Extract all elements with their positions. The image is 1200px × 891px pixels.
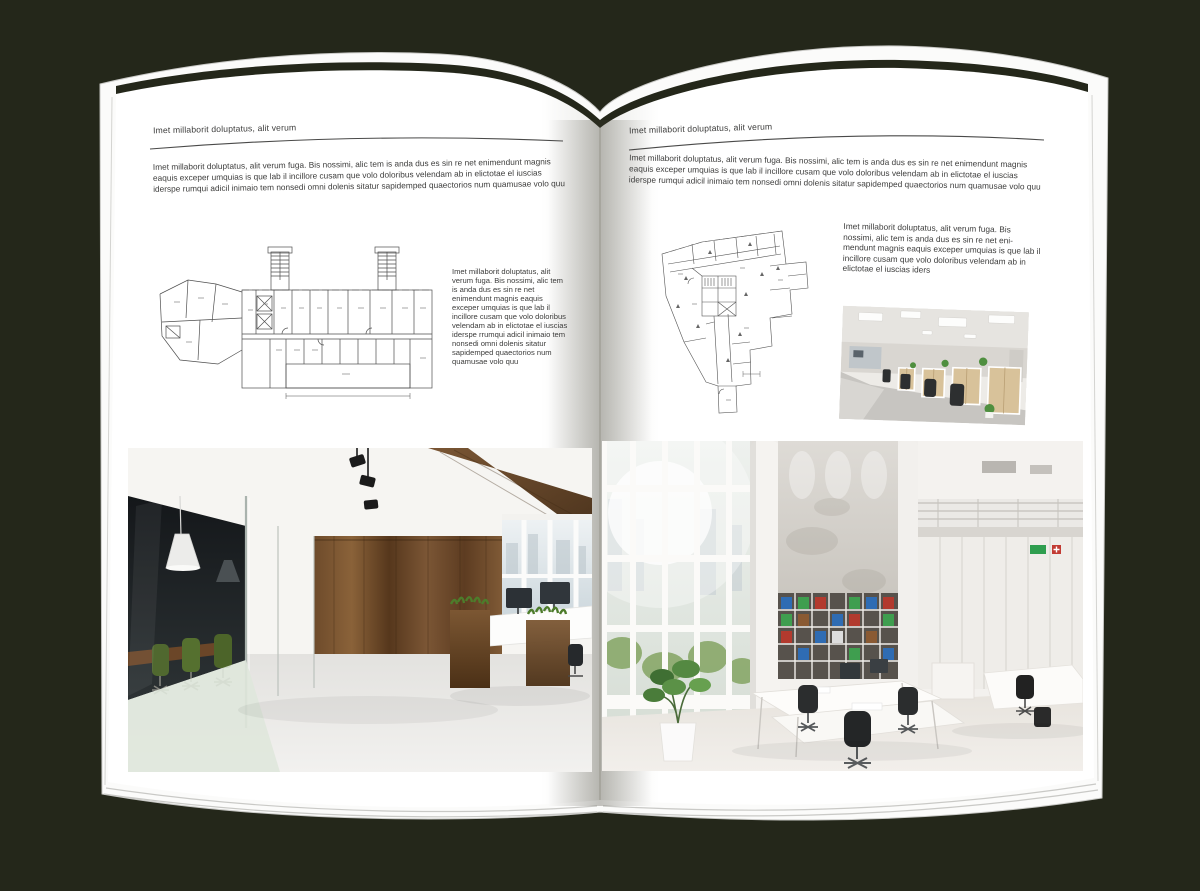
right-floor-plan [648, 224, 814, 416]
monitor-icon [840, 663, 860, 679]
brochure-mockup: Imet millaborit doluptatus, alit verum I… [0, 0, 1200, 891]
planter-box [450, 597, 490, 688]
left-floor-plan [152, 238, 444, 410]
right-office-photo [602, 441, 1083, 771]
monitor-icon [870, 659, 888, 673]
right-page-side-text: Imet millaborit doluptatus, alit verum f… [842, 221, 1043, 278]
exit-sign-icon [1030, 545, 1046, 554]
monitor-icon [540, 582, 570, 604]
monitor-icon [506, 588, 532, 608]
mezzanine [918, 441, 1083, 537]
left-office-photo [128, 448, 592, 772]
column [898, 441, 918, 683]
left-page-side-text: Imet millaborit doluptatus, alit verum f… [452, 267, 570, 366]
left-page-intro: Imet millaborit doluptatus, alit verum f… [153, 156, 567, 195]
small-office-photo [839, 306, 1029, 425]
